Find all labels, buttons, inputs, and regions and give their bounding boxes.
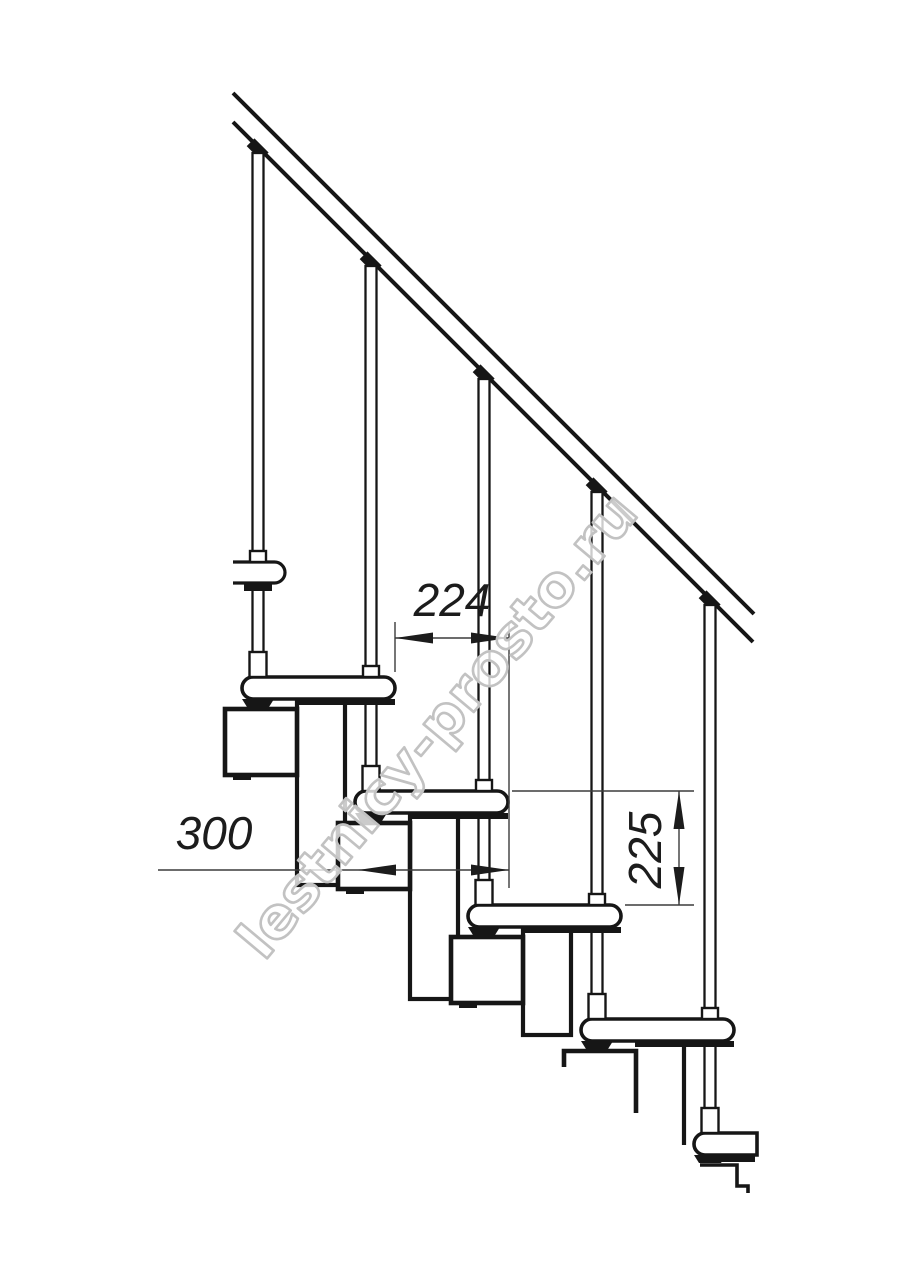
module-box-3 (451, 937, 523, 1003)
module-tube-3 (523, 928, 571, 1035)
handrail (233, 93, 754, 642)
staircase-drawing: 224300225lestnicy-prosto.ru (0, 0, 914, 1280)
dim-224-arrow-left (395, 633, 433, 644)
module-top-plate-5 (635, 1041, 734, 1047)
baluster-2 (366, 266, 377, 791)
handrail-upper-line (233, 93, 754, 614)
module-top-plate-4 (522, 927, 621, 933)
module-box-4-partial (564, 1051, 636, 1113)
baluster-foot-collar-4 (589, 994, 606, 1019)
baluster-foot-collar-1 (250, 652, 267, 677)
dim-225-label: 225 (619, 811, 671, 889)
dim-224-label: 224 (413, 574, 491, 626)
baluster-cross-collar-5 (702, 1008, 718, 1019)
handrail-lower-line (233, 122, 753, 642)
module-top-plate-2 (296, 699, 395, 705)
baluster-clamp-4 (581, 1041, 613, 1049)
tread-2 (242, 677, 395, 699)
baluster-clamp-3 (468, 927, 500, 935)
baluster-clamp-5 (694, 1155, 726, 1163)
dim-225-arrow-up (674, 791, 685, 829)
tread-4 (468, 905, 621, 927)
tread-6-partial (694, 1133, 757, 1155)
baluster-cross-collar-3 (476, 780, 492, 791)
baluster-clamp-top (244, 584, 272, 591)
baluster-cross-collar-1 (250, 551, 266, 562)
baluster-clamp-1 (242, 699, 274, 707)
staircase-drawing-canvas: 224300225lestnicy-prosto.ru (0, 0, 914, 1280)
tread-5 (581, 1019, 734, 1041)
module-box-nub-2 (346, 887, 364, 894)
baluster-1 (253, 153, 264, 677)
dim-225-arrow-down (674, 867, 685, 905)
baluster-cross-collar-2 (363, 666, 379, 677)
baluster-foot-collar-5 (702, 1108, 719, 1133)
baluster-foot-collar-3 (476, 880, 493, 905)
baluster-5 (705, 605, 716, 1133)
module-box-nub-1 (233, 773, 251, 780)
baluster-cross-collar-4 (589, 894, 605, 905)
module-top-plate-3 (409, 813, 508, 819)
module-box-nub-3 (459, 1001, 477, 1008)
module-box-5-partial (700, 1165, 748, 1193)
tread-1-partial (233, 562, 285, 583)
dim-300-label: 300 (176, 807, 253, 859)
module-box-1 (225, 709, 297, 775)
